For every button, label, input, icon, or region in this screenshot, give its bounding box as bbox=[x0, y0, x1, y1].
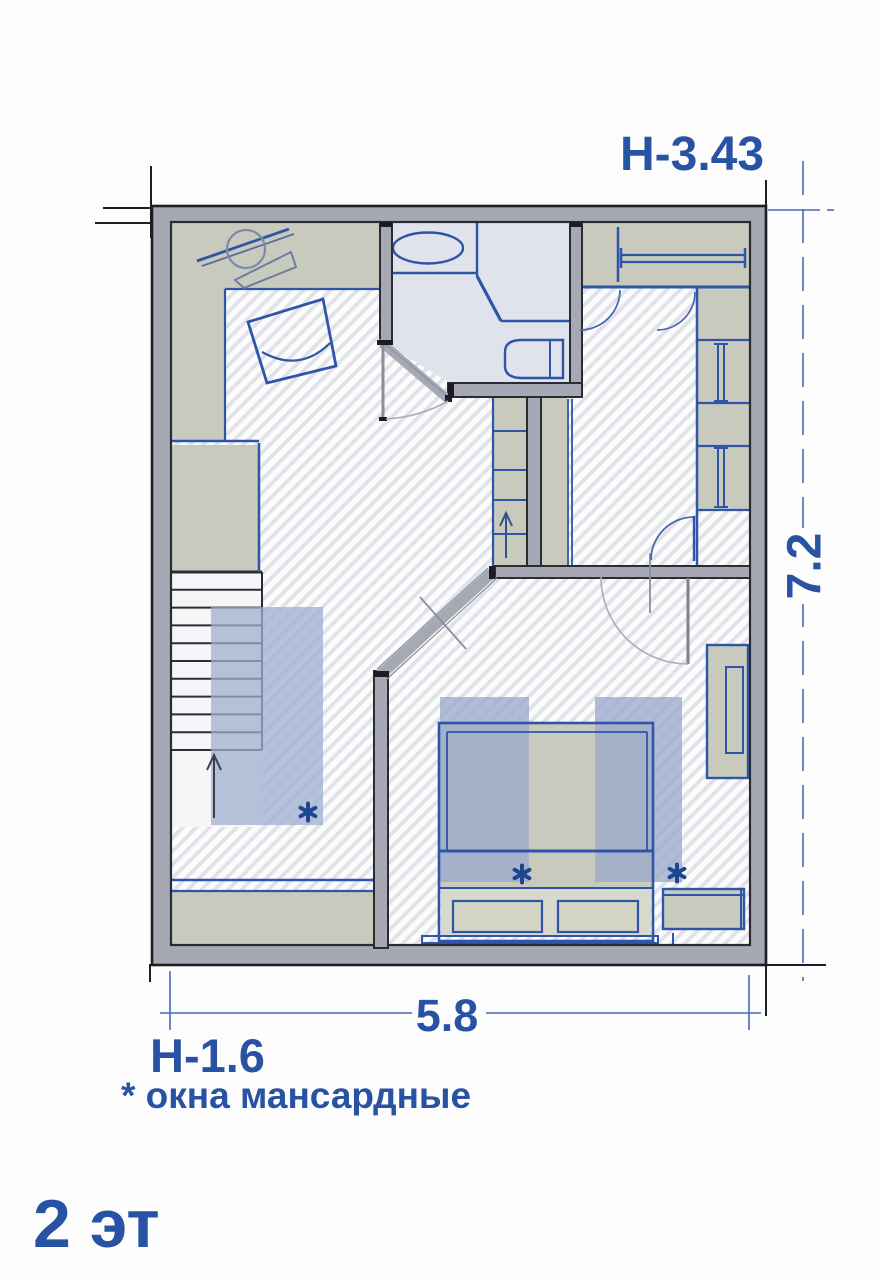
svg-text:* окна мансардные: * окна мансардные bbox=[121, 1075, 471, 1116]
svg-text:2 эт: 2 эт bbox=[33, 1186, 160, 1262]
svg-text:5.8: 5.8 bbox=[416, 990, 479, 1041]
svg-text:7.2: 7.2 bbox=[779, 533, 832, 600]
svg-text:Н-3.43: Н-3.43 bbox=[620, 128, 764, 181]
